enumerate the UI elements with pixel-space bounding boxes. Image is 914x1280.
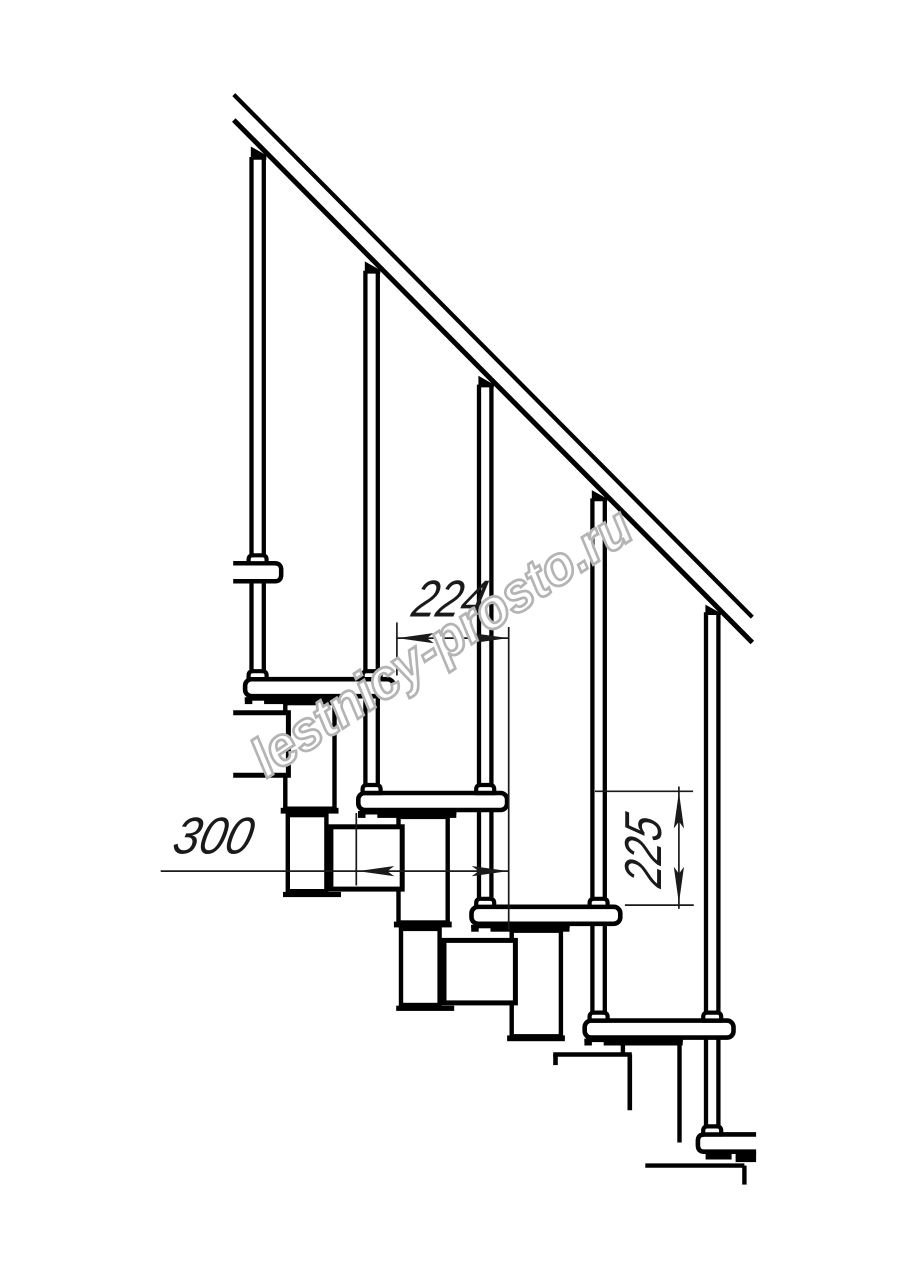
svg-text:300: 300: [168, 807, 260, 865]
